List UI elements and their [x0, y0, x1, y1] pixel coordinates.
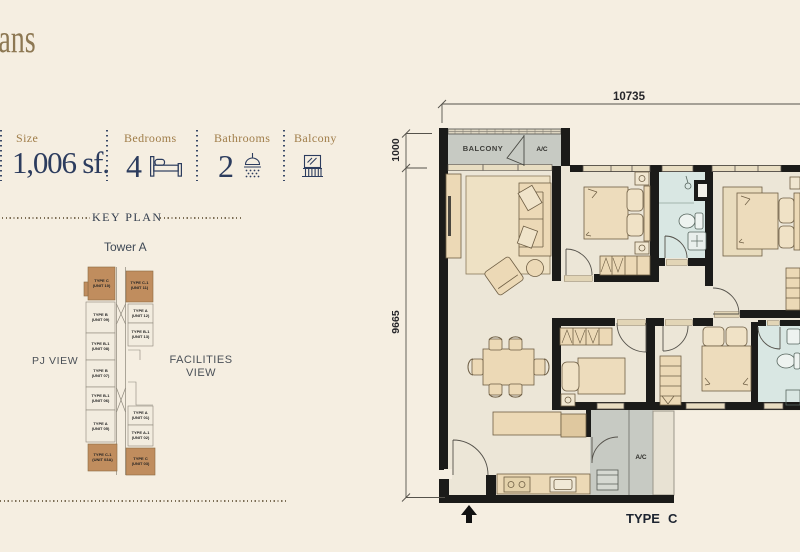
svg-text:C: C: [668, 511, 678, 526]
svg-text:10735: 10735: [613, 91, 646, 103]
svg-text:A/C: A/C: [536, 146, 548, 153]
svg-text:9665: 9665: [390, 310, 402, 334]
svg-text:A/C: A/C: [635, 454, 647, 461]
svg-text:1000: 1000: [390, 138, 402, 162]
svg-text:TYPE: TYPE: [626, 511, 660, 526]
svg-text:BALCONY: BALCONY: [463, 144, 504, 153]
